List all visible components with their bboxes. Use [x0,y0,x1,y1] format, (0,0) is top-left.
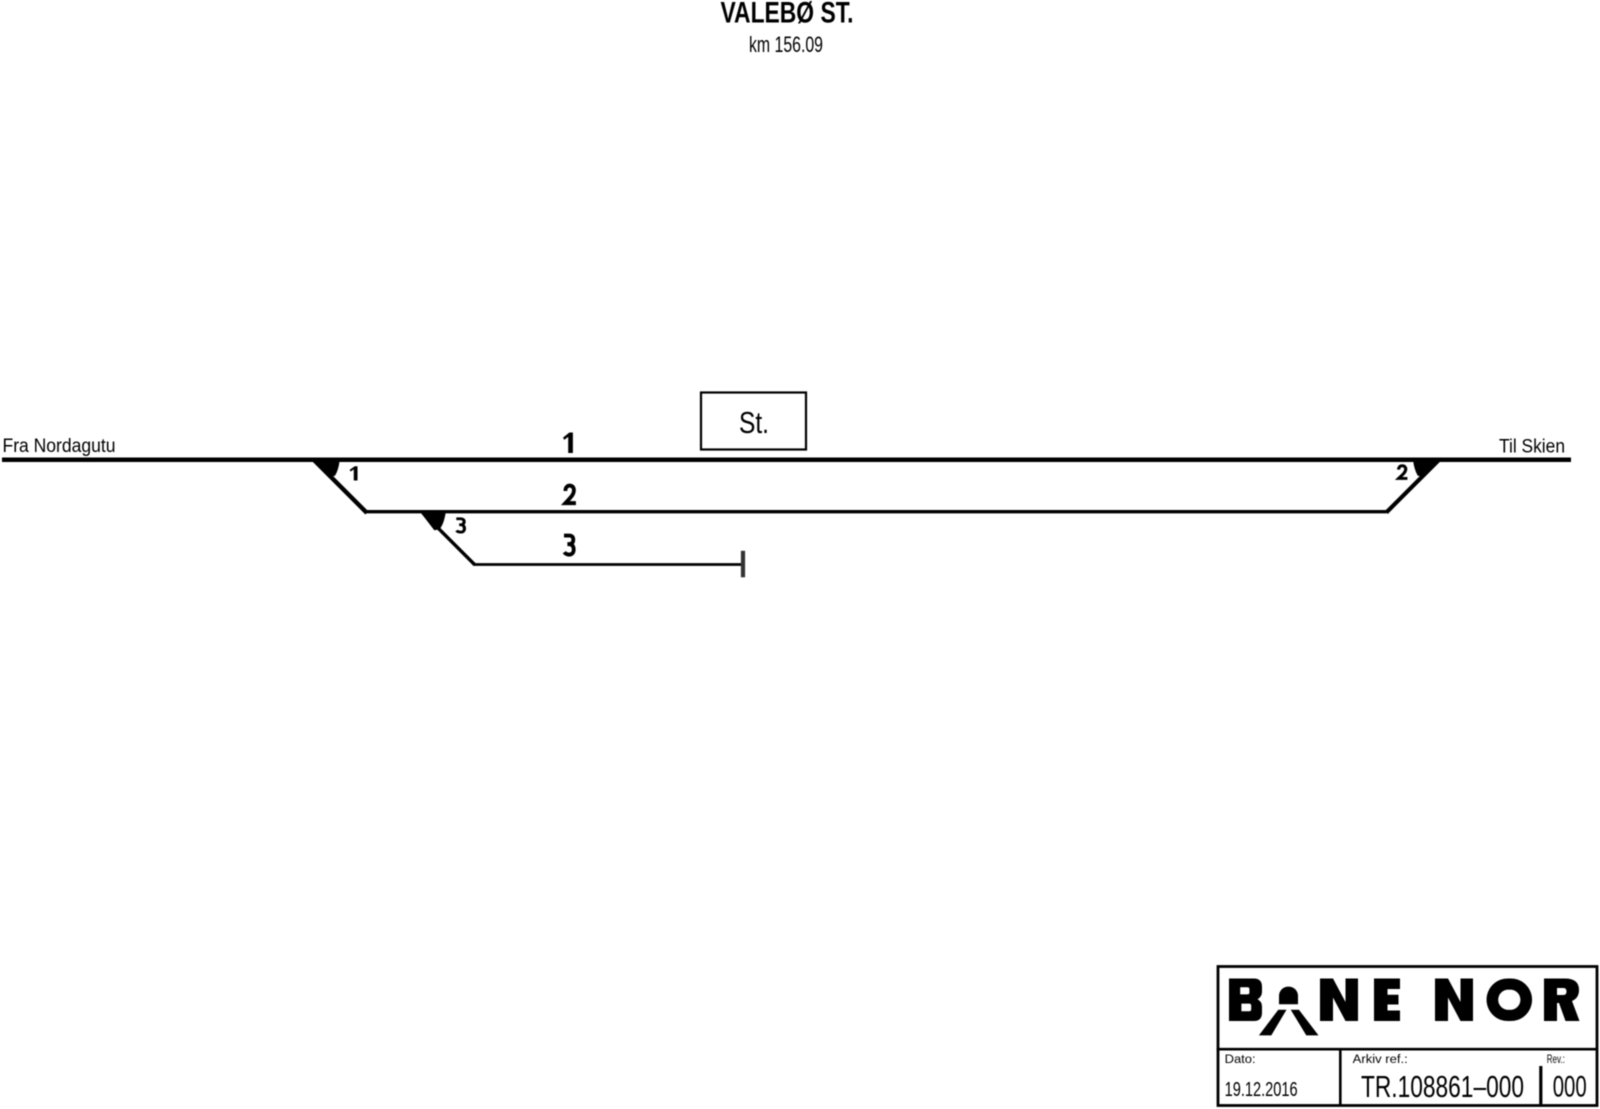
svg-text:000: 000 [1553,1071,1587,1104]
svg-text:Fra Nordagutu: Fra Nordagutu [3,436,116,457]
svg-text:km 156.09: km 156.09 [749,32,823,57]
svg-text:Dato:: Dato: [1225,1054,1256,1066]
svg-text:VALEBØ ST.: VALEBØ ST. [721,0,854,30]
svg-text:Arkiv ref.:: Arkiv ref.: [1353,1054,1408,1066]
svg-text:Til Skien: Til Skien [1499,436,1565,457]
svg-text:Rev.:: Rev.: [1547,1054,1565,1066]
svg-text:19.12.2016: 19.12.2016 [1225,1079,1298,1101]
svg-text:St.: St. [739,405,769,440]
svg-text:TR.108861–000: TR.108861–000 [1361,1069,1524,1104]
